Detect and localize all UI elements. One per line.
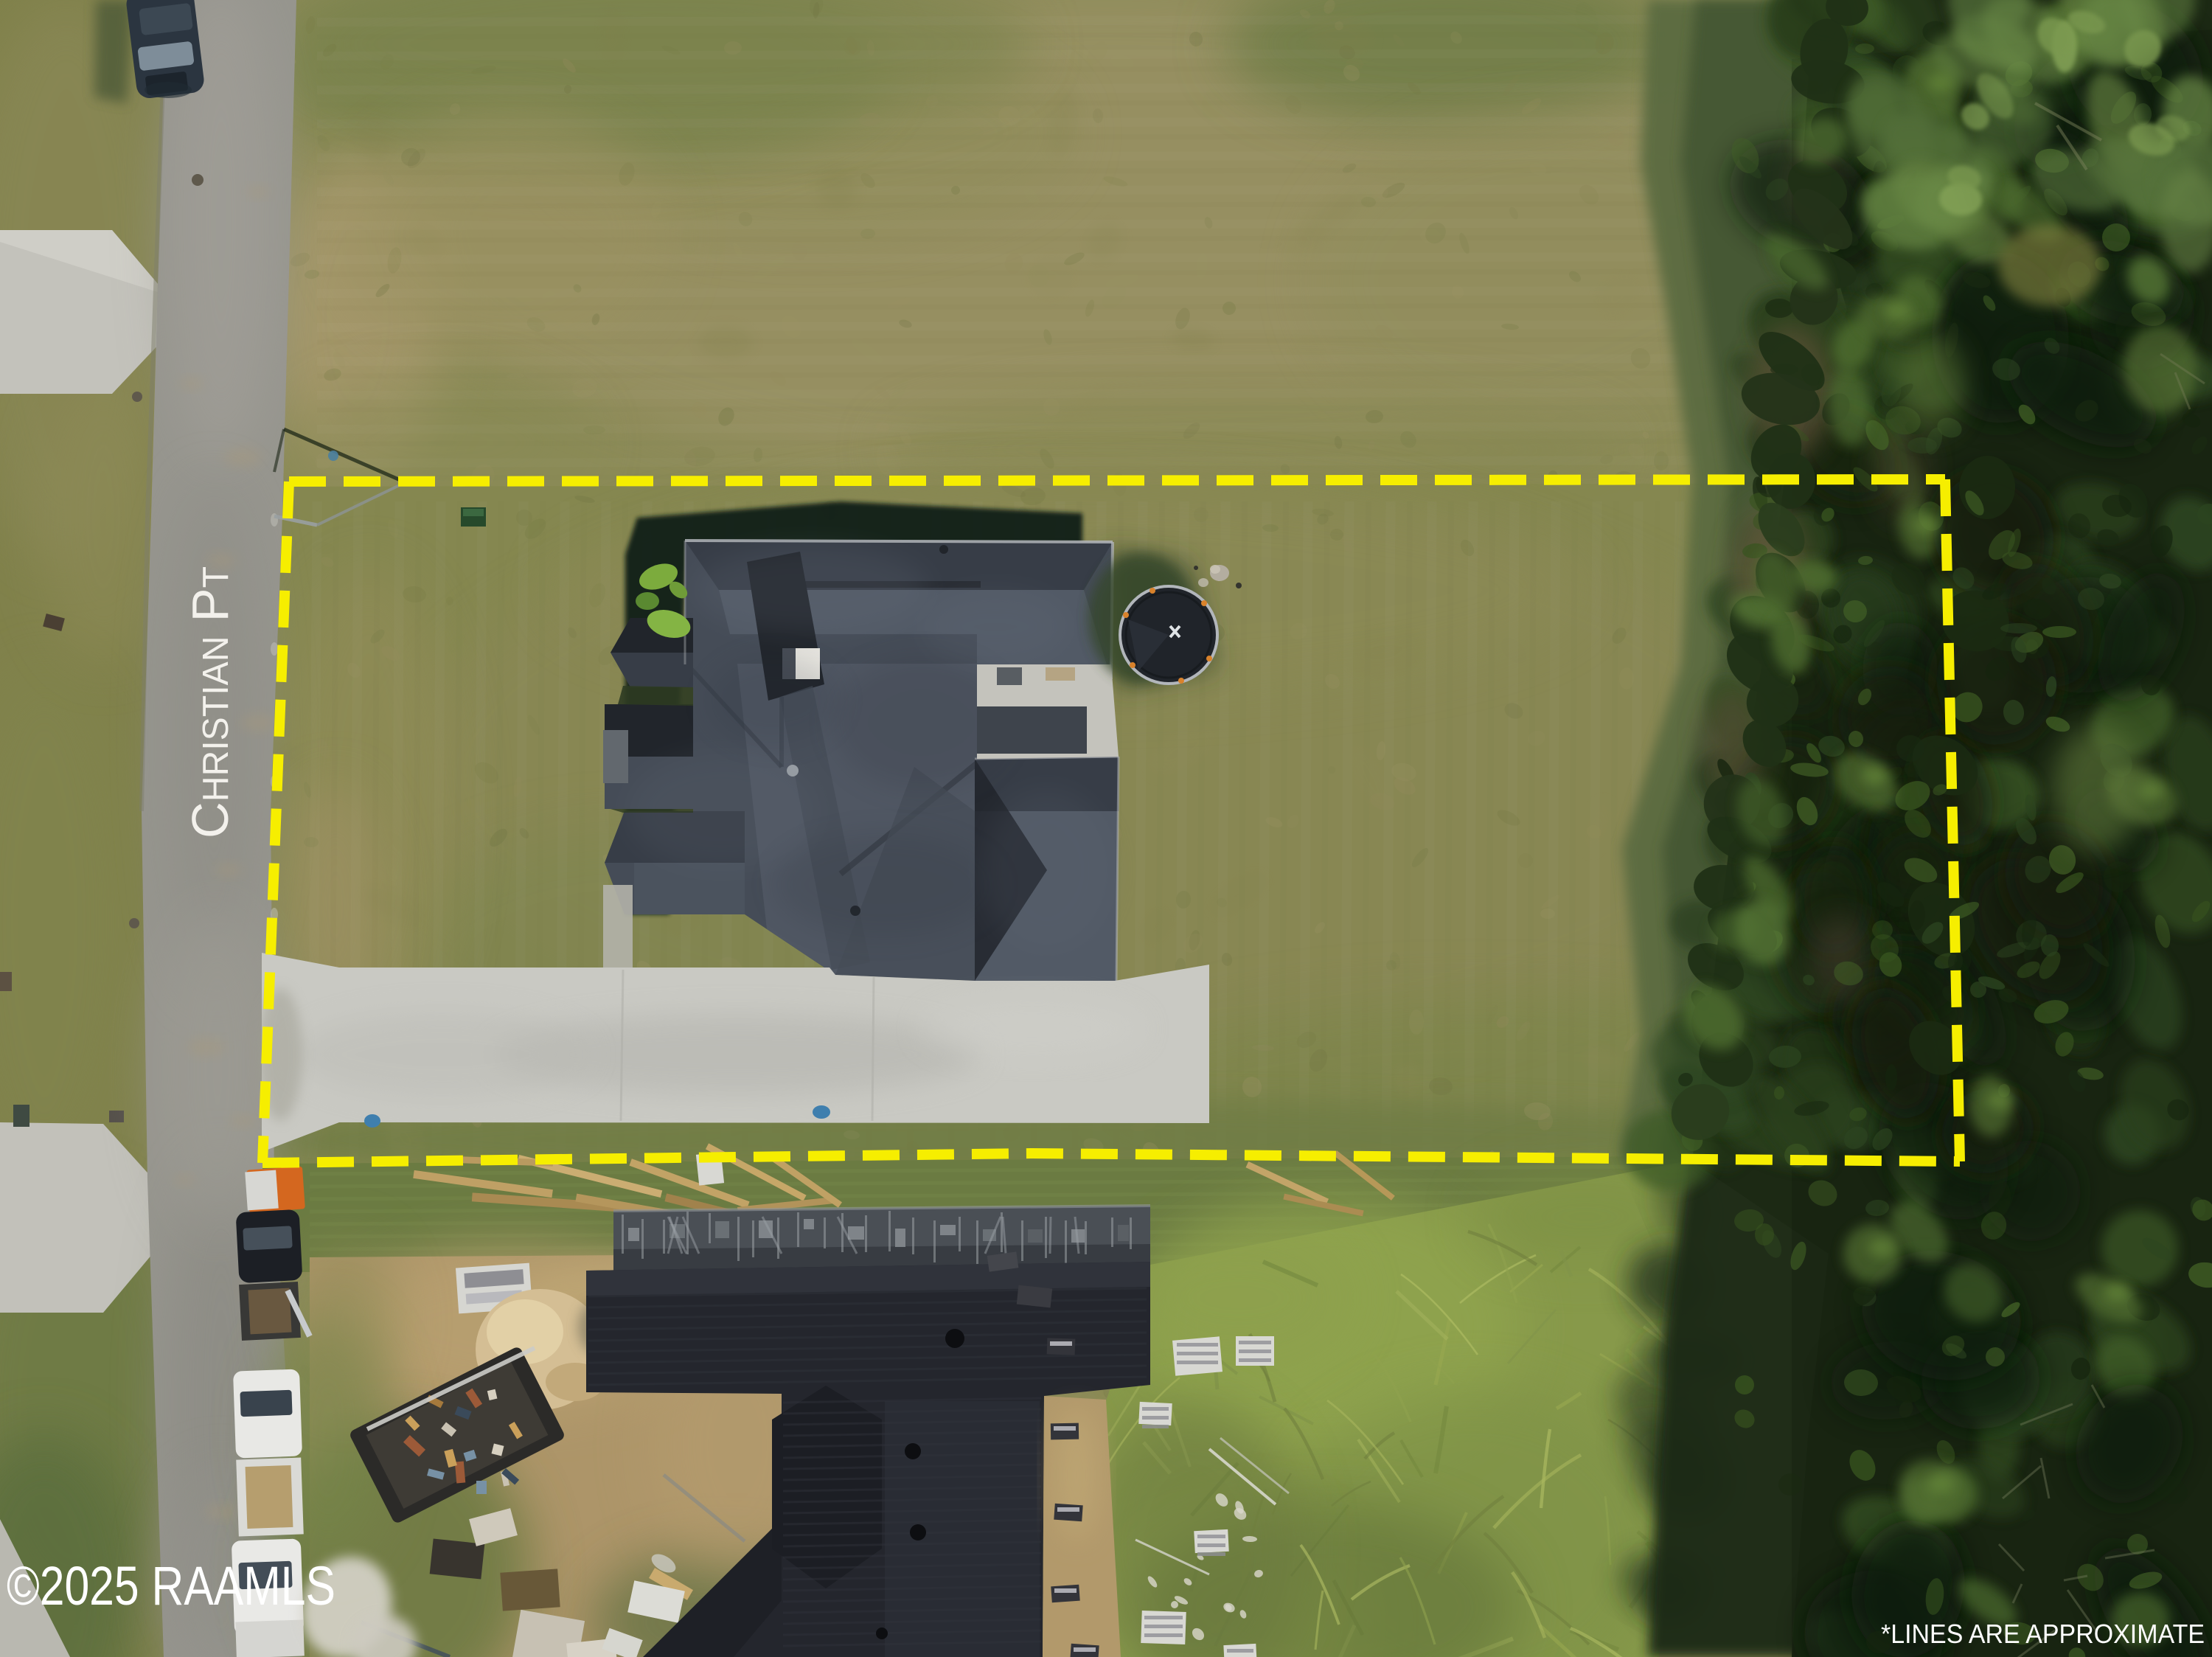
svg-text:*LINES ARE APPROXIMATE: *LINES ARE APPROXIMATE <box>1881 1619 2205 1649</box>
svg-text:©2025 RAAMLS: ©2025 RAAMLS <box>7 1555 335 1616</box>
svg-text:Christian Pt: Christian Pt <box>181 566 239 838</box>
